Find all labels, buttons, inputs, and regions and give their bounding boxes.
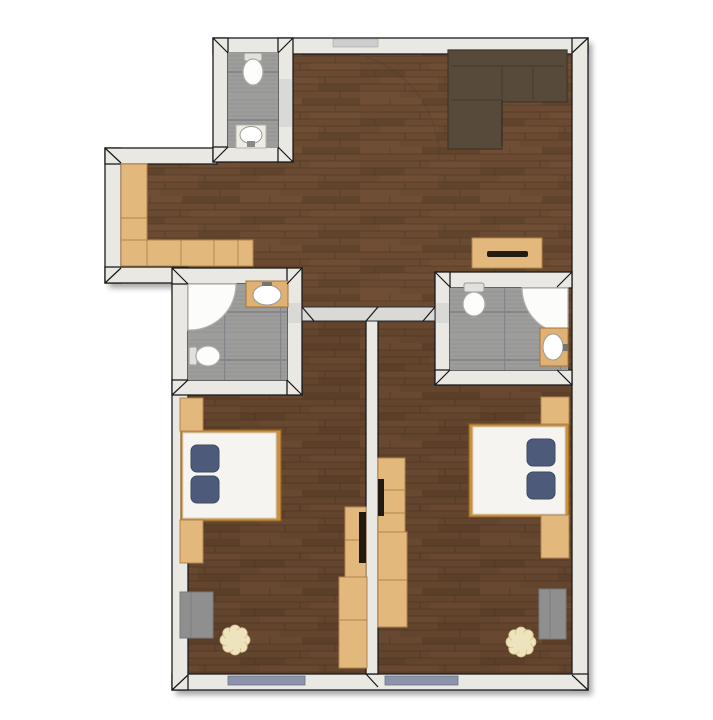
toilet-tank-bath-right — [464, 283, 484, 292]
wall-bath-top-left — [213, 38, 228, 162]
faucet-bath-top — [247, 141, 255, 147]
wall-bath-right-left — [435, 272, 450, 385]
door-opening-bath-right — [436, 303, 449, 323]
nightstand-right-top — [541, 397, 569, 424]
bed-pillow-left-1 — [191, 445, 219, 472]
kitchen-counter-horizontal — [121, 240, 253, 266]
faucet-bath-left — [262, 282, 272, 286]
door-opening-bath-left — [288, 303, 301, 323]
rug-bedroom-right — [539, 589, 566, 639]
wall-bath-left-bottom — [172, 380, 302, 395]
bed-pillow-left-2 — [191, 476, 219, 503]
wall-bath-right-top — [435, 272, 572, 288]
desk-handle — [487, 251, 528, 257]
tv-panel-left — [359, 512, 366, 563]
entry-door — [333, 39, 378, 47]
window-bedroom-right — [385, 676, 458, 685]
wall-bath-right-bottom — [435, 370, 572, 385]
bed-pillow-right-1 — [527, 439, 555, 466]
pouf-bedroom-right — [506, 627, 536, 657]
floor-plan-canvas — [0, 0, 713, 720]
wall-bath-left-right — [287, 268, 302, 395]
toilet-bowl-bath-left — [196, 346, 220, 366]
wardrobe-left-lower — [339, 577, 367, 668]
sink-bowl-bath-top — [240, 127, 262, 144]
rug-bedroom-left — [180, 592, 213, 638]
wardrobe-right-lower — [378, 532, 407, 627]
nightstand-left-top — [180, 398, 203, 431]
sink-bowl-bath-left — [253, 285, 281, 305]
nightstand-left-bottom — [180, 520, 203, 563]
floor-plan-drawing — [0, 0, 713, 720]
window-bedroom-left — [228, 676, 305, 685]
faucet-bath-right — [563, 344, 568, 351]
nightstand-right-bottom — [541, 515, 569, 558]
toilet-bowl-bath-right — [463, 292, 485, 316]
wall-nook-top — [105, 148, 217, 164]
bed-pillow-right-2 — [527, 472, 555, 499]
door-opening-bath-top — [279, 79, 292, 127]
sink-bowl-bath-right — [543, 334, 563, 360]
toilet-bowl-bath-top — [243, 59, 263, 85]
wall-right — [572, 38, 588, 690]
wall-nook-left — [105, 148, 121, 283]
pouf-bedroom-left — [220, 625, 250, 655]
tv-panel-right — [378, 479, 384, 516]
wall-bedroom-divider — [366, 314, 378, 674]
